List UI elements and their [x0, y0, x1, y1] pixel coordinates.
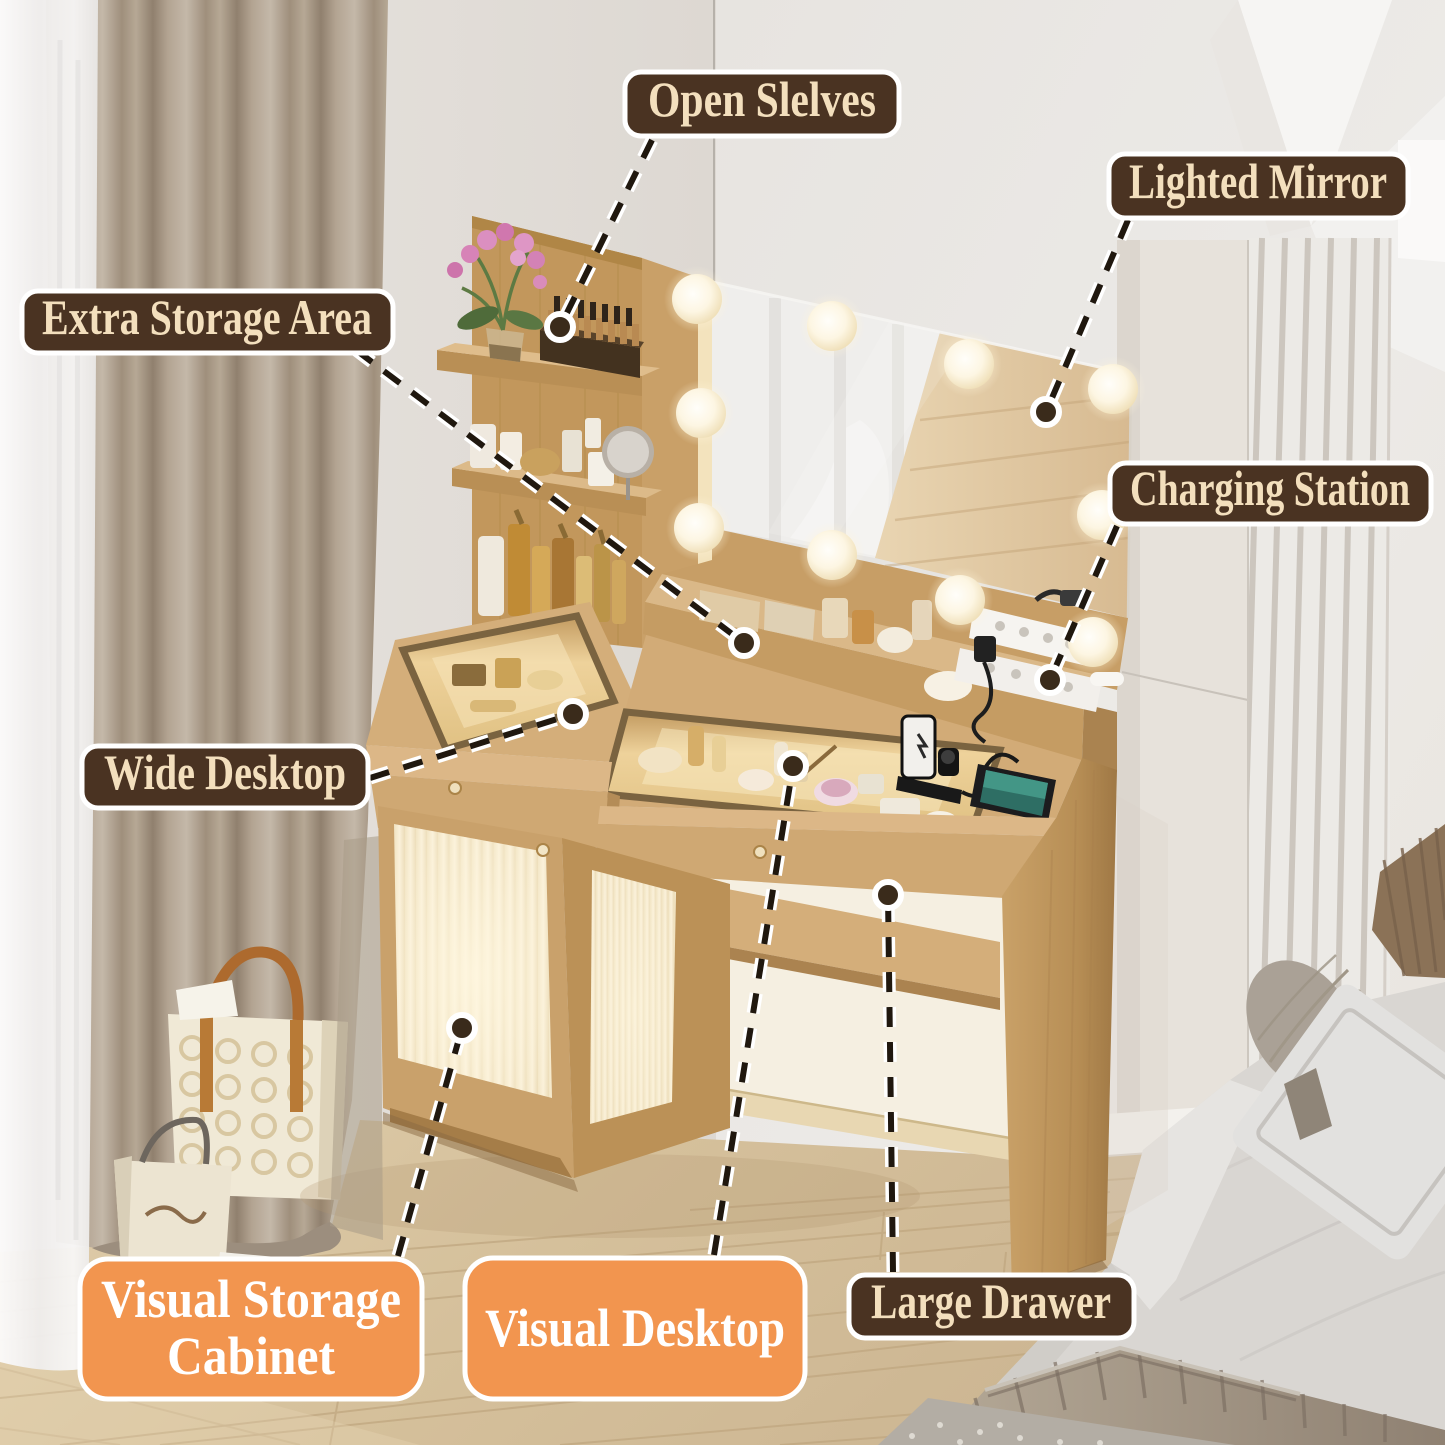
svg-text:Large Drawer: Large Drawer — [871, 1273, 1111, 1329]
svg-text:Wide Desktop: Wide Desktop — [104, 744, 346, 800]
svg-text:Extra Storage Area: Extra Storage Area — [42, 289, 372, 345]
svg-text:Visual Storage: Visual Storage — [101, 1269, 401, 1329]
svg-text:Lighted Mirror: Lighted Mirror — [1129, 153, 1387, 209]
svg-text:Visual Desktop: Visual Desktop — [485, 1298, 785, 1358]
svg-text:Cabinet: Cabinet — [167, 1326, 335, 1386]
svg-text:Charging Station: Charging Station — [1130, 460, 1410, 516]
svg-text:Open Slelves: Open Slelves — [648, 71, 876, 127]
